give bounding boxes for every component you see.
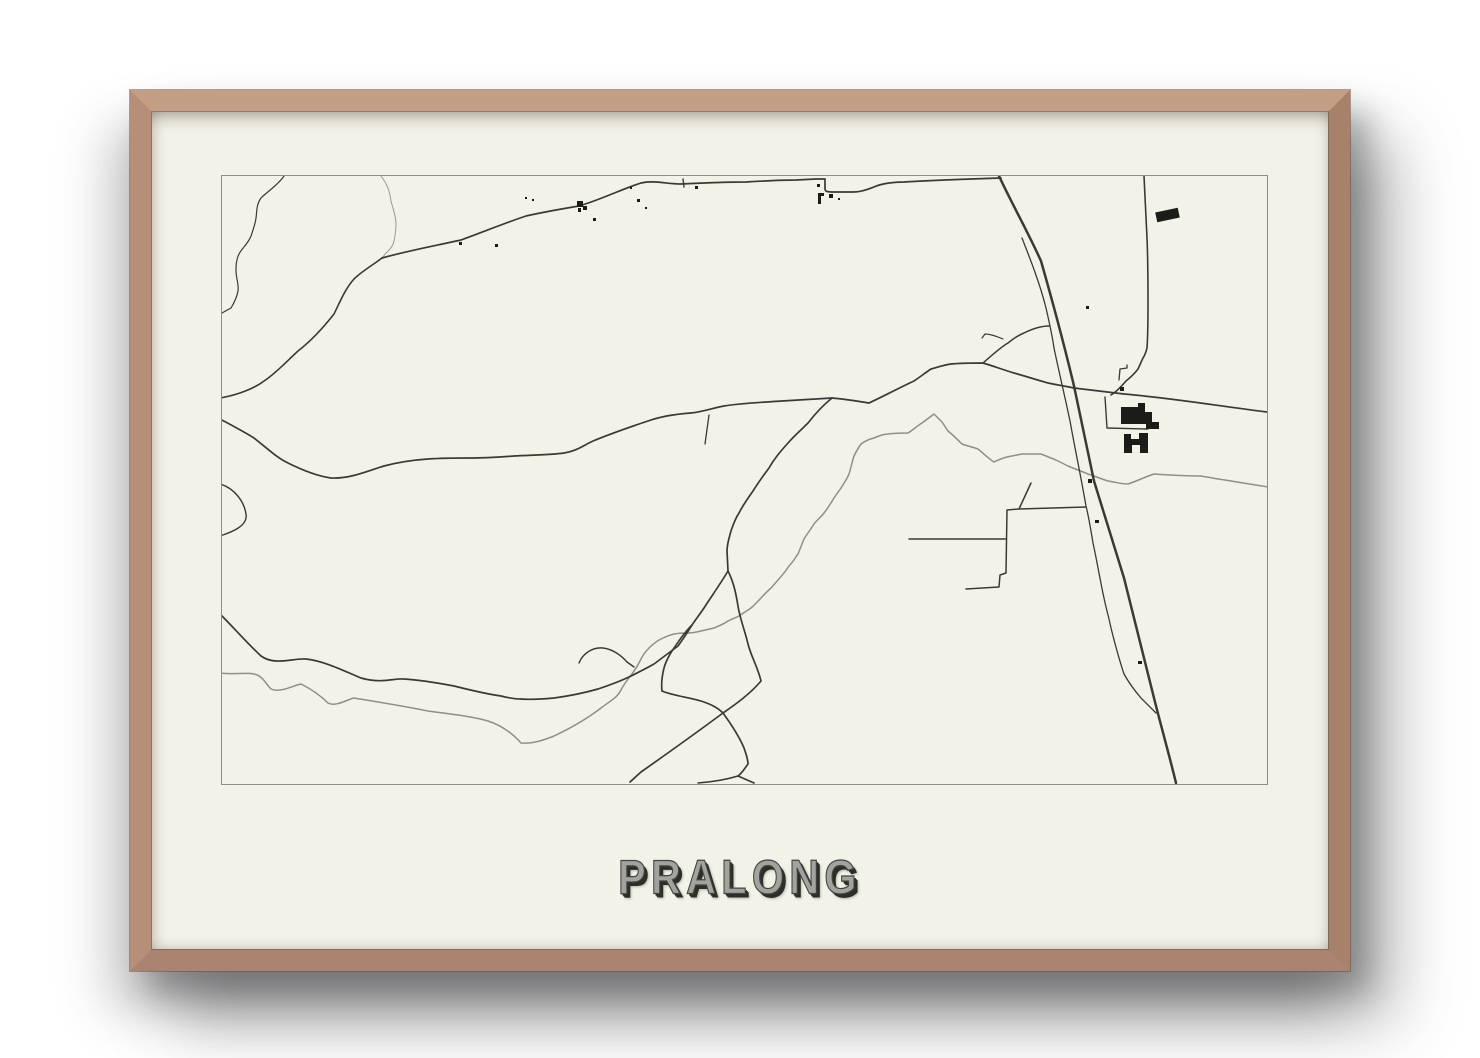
vertical-road-right	[1111, 176, 1148, 395]
building-footprint	[1086, 306, 1089, 309]
building-footprint	[1088, 479, 1092, 483]
building-footprint	[1138, 661, 1142, 664]
top-road	[382, 178, 1001, 258]
branch-southeast	[630, 571, 761, 782]
small-arc-stream	[381, 176, 396, 258]
building-footprint	[829, 194, 833, 198]
ne-diagonal-link	[983, 326, 1049, 363]
diagonal-branch-tick	[982, 334, 1003, 339]
building-footprint	[695, 186, 698, 189]
building-footprint	[818, 193, 824, 204]
building-footprint	[1155, 208, 1180, 223]
building-footprint	[645, 207, 647, 209]
building-footprint	[1095, 520, 1099, 523]
branch-southwest	[662, 571, 728, 691]
short-stub	[705, 415, 709, 444]
building-footprint	[630, 187, 632, 189]
border-tick	[683, 179, 684, 187]
highway	[999, 176, 1176, 783]
map-svg	[222, 176, 1267, 784]
bottom-arc	[662, 691, 754, 783]
tiny-hook-road	[1119, 365, 1127, 380]
stream-topleft	[222, 176, 284, 314]
building-footprint	[583, 206, 587, 210]
main-river	[222, 414, 1267, 743]
building-footprint	[1121, 403, 1159, 429]
building-footprint	[593, 218, 596, 221]
small-hook	[579, 648, 634, 667]
building-footprint	[525, 197, 527, 199]
building-footprint	[1120, 387, 1124, 391]
building-footprint	[532, 199, 534, 201]
bottom-fork-left	[698, 776, 738, 783]
highway-side-road	[1022, 238, 1156, 713]
road-to-left-border	[222, 258, 382, 398]
map-figure	[221, 175, 1268, 785]
poster-frame: PRALONG	[130, 90, 1350, 971]
building-footprint	[817, 184, 820, 187]
east-horizontal-road	[832, 363, 1267, 412]
poster-title: PRALONG	[223, 848, 1258, 904]
building-footprint	[838, 198, 840, 200]
building-footprint	[578, 208, 581, 212]
staple-roads	[909, 483, 1086, 589]
s-descent	[727, 398, 832, 571]
mid-left-road	[222, 398, 832, 478]
poster-paper: PRALONG	[152, 112, 1328, 949]
building-footprint	[637, 199, 640, 202]
building-footprint	[577, 201, 583, 207]
left-border-bump	[222, 484, 246, 536]
wall-background: PRALONG	[0, 0, 1480, 1058]
building-footprint	[459, 242, 462, 245]
building-footprint	[1124, 433, 1148, 453]
building-footprint	[495, 244, 498, 247]
